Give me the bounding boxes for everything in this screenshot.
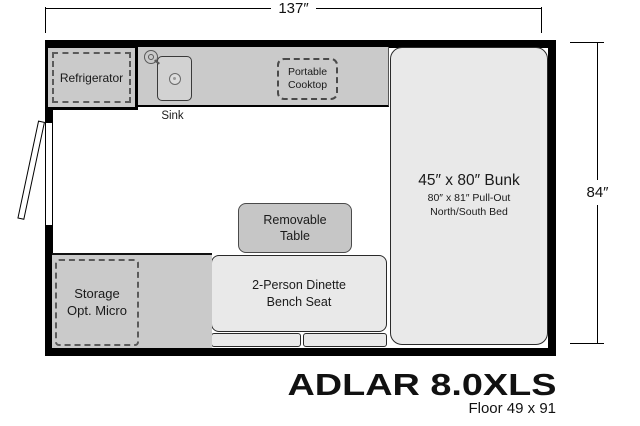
bunk-title: 45″ x 80″ Bunk (418, 172, 519, 190)
sink-label: Sink (150, 109, 195, 123)
refrigerator-label: Refrigerator (48, 48, 135, 107)
bunk: 45″ x 80″ Bunk 80″ x 81″ Pull-Out North/… (390, 47, 548, 345)
storage-dashed-outline: Storage Opt. Micro (55, 259, 139, 346)
faucet-icon (144, 50, 162, 68)
dimension-height-line-bottom (597, 205, 598, 343)
dimension-width-line-left (45, 8, 271, 9)
dimension-width-tick-right (541, 7, 542, 33)
door-panel (17, 121, 45, 220)
floorplan-canvas: 137″ 84″ Refrigerator Sink Portable Cook… (0, 0, 640, 426)
dimension-width-line-right (316, 8, 542, 9)
dimension-height-line-top (597, 42, 598, 180)
dimension-width-label: 137″ (271, 0, 315, 17)
dinette-step-left (211, 333, 301, 347)
refrigerator: Refrigerator (45, 45, 138, 110)
dimension-width: 137″ (45, 0, 542, 16)
dimension-width-tick-left (45, 7, 46, 33)
bunk-subtitle-2: North/South Bed (418, 206, 519, 220)
bunk-subtitle-1: 80″ x 81″ Pull-Out (418, 192, 519, 206)
sink-drain-icon (169, 73, 181, 85)
dimension-height: 84″ (581, 42, 614, 343)
portable-cooktop: Portable Cooktop (277, 58, 338, 100)
bunk-text: 45″ x 80″ Bunk 80″ x 81″ Pull-Out North/… (418, 172, 519, 219)
removable-table: Removable Table (238, 203, 352, 253)
floor-size: Floor 49 x 91 (468, 400, 556, 417)
dimension-height-tick-bottom (570, 343, 604, 344)
sink-basin (157, 56, 192, 101)
door-opening (45, 123, 53, 225)
dinette-bench: 2-Person Dinette Bench Seat (211, 255, 387, 332)
wall-bottom (45, 348, 556, 356)
model-name: ADLAR 8.0XLS (287, 367, 556, 403)
wall-right (548, 40, 556, 356)
dimension-height-label: 84″ (587, 180, 609, 205)
dinette-step-right (303, 333, 387, 347)
